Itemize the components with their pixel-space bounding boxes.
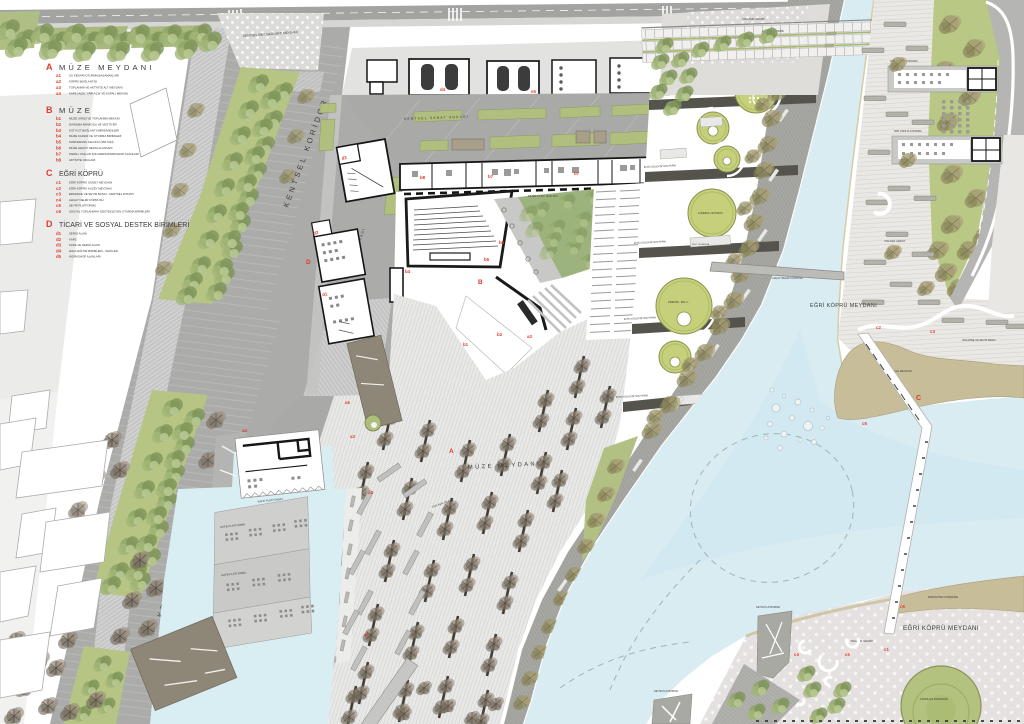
svg-text:HALK EĞİTİM BİRİMLERİ - İŞLİKL: HALK EĞİTİM BİRİMLERİ - İŞLİKLER bbox=[69, 248, 118, 253]
svg-text:d3: d3 bbox=[56, 243, 62, 248]
svg-text:c1: c1 bbox=[884, 647, 889, 652]
svg-text:d4: d4 bbox=[56, 248, 62, 253]
svg-text:KAFE (AÇIK, YARI AÇIK VE KAPAL: KAFE (AÇIK, YARI AÇIK VE KAPALI MEKAN) bbox=[69, 92, 128, 96]
svg-text:SOSYAL TOPLANMAYI DESTEKLEYEN: SOSYAL TOPLANMAYI DESTEKLEYEN OTURMA BİR… bbox=[69, 209, 150, 214]
svg-text:d5: d5 bbox=[56, 254, 62, 259]
svg-text:b7: b7 bbox=[56, 151, 62, 156]
svg-text:ÇİMENTE - 800 m²: ÇİMENTE - 800 m² bbox=[668, 301, 689, 304]
svg-text:b5: b5 bbox=[484, 257, 490, 262]
svg-text:b5: b5 bbox=[56, 140, 62, 145]
svg-text:WORKSHOP ALANLARI: WORKSHOP ALANLARI bbox=[69, 255, 101, 259]
svg-text:b7: b7 bbox=[574, 171, 580, 176]
svg-text:a2: a2 bbox=[56, 79, 61, 84]
svg-text:b8: b8 bbox=[56, 157, 62, 162]
svg-text:b2: b2 bbox=[56, 122, 62, 127]
svg-text:MÜZE: MÜZE bbox=[59, 106, 93, 115]
svg-text:b2: b2 bbox=[497, 332, 503, 337]
svg-text:KAFE: KAFE bbox=[69, 237, 77, 241]
svg-text:YAKLAŞIK GRANİT: YAKLAŞIK GRANİT bbox=[884, 240, 906, 243]
svg-text:c6: c6 bbox=[900, 604, 905, 609]
svg-text:a3: a3 bbox=[527, 334, 532, 339]
svg-text:c4: c4 bbox=[56, 197, 61, 202]
svg-text:SERGİ ALANI: SERGİ ALANI bbox=[69, 231, 87, 236]
svg-text:d4: d4 bbox=[440, 87, 446, 92]
svg-text:KÜLT VE MEDYA: KÜLT VE MEDYA bbox=[692, 243, 710, 246]
svg-text:a5: a5 bbox=[345, 400, 350, 405]
svg-text:c5: c5 bbox=[862, 421, 867, 426]
svg-text:b6: b6 bbox=[499, 240, 505, 245]
svg-text:b6: b6 bbox=[56, 146, 62, 151]
svg-text:c1: c1 bbox=[56, 180, 61, 185]
svg-text:b7: b7 bbox=[488, 174, 494, 179]
svg-text:ERKENCE VE SEYİR BANKI - KENTS: ERKENCE VE SEYİR BANKI - KENTSEL DONATI bbox=[69, 191, 134, 196]
svg-text:MÜZE GEÇİCİ SERGİ ALANLARI: MÜZE GEÇİCİ SERGİ ALANLARI bbox=[69, 145, 113, 150]
svg-text:b1: b1 bbox=[463, 342, 469, 347]
svg-text:KONFERANS SALONU (450 KİŞİ): KONFERANS SALONU (450 KİŞİ) bbox=[69, 139, 114, 144]
svg-text:a4: a4 bbox=[242, 428, 247, 433]
svg-text:MÜZE MEYDANI: MÜZE MEYDANI bbox=[59, 63, 154, 72]
svg-text:c6: c6 bbox=[56, 209, 61, 214]
svg-text:c5: c5 bbox=[56, 203, 61, 208]
svg-text:c3: c3 bbox=[56, 192, 61, 197]
svg-text:KAFE VE SERGİ ALANI: KAFE VE SERGİ ALANI bbox=[69, 242, 100, 247]
svg-text:a3: a3 bbox=[56, 85, 61, 90]
svg-text:a2: a2 bbox=[368, 490, 373, 495]
svg-text:EĞRİ KÖPRÜ KUZEY MEYDANI: EĞRİ KÖPRÜ KUZEY MEYDANI bbox=[69, 185, 112, 190]
svg-text:a1: a1 bbox=[364, 632, 369, 637]
svg-text:EĞRİ KÖPRÜ MEYDANI: EĞRİ KÖPRÜ MEYDANI bbox=[810, 302, 877, 309]
svg-text:C: C bbox=[46, 168, 53, 178]
svg-text:AKTİVİTE ODALARI: AKTİVİTE ODALARI bbox=[69, 157, 96, 162]
svg-text:TOPLANMA VE AKTİVİTE ALT MEYDA: TOPLANMA VE AKTİVİTE ALT MEYDANI bbox=[69, 85, 123, 90]
svg-text:FARKLI YAŞLAR İÇİN DERS/WORKSH: FARKLI YAŞLAR İÇİN DERS/WORKSHOP ALANLAR… bbox=[69, 151, 139, 156]
svg-text:b4: b4 bbox=[405, 269, 411, 274]
svg-text:c3: c3 bbox=[930, 329, 935, 334]
svg-text:D: D bbox=[306, 259, 311, 266]
svg-text:A: A bbox=[46, 62, 53, 72]
svg-text:KÖPRÜ BAĞLANTISI: KÖPRÜ BAĞLANTISI bbox=[69, 79, 97, 84]
svg-text:EĞRİ KÖPRÜ MEYDANI: EĞRİ KÖPRÜ MEYDANI bbox=[903, 625, 979, 632]
svg-text:a1: a1 bbox=[56, 73, 61, 78]
svg-text:D: D bbox=[46, 219, 53, 229]
svg-text:DANIŞMA BANKOSU VE VESTİYER: DANIŞMA BANKOSU VE VESTİYER bbox=[69, 121, 117, 126]
svg-text:AHÇAY NEHİR KÖPRÜSÜ: AHÇAY NEHİR KÖPRÜSÜ bbox=[69, 197, 104, 202]
svg-text:GÜNEBOLU ETKİNLİK: GÜNEBOLU ETKİNLİK bbox=[698, 212, 723, 215]
svg-text:d1: d1 bbox=[56, 231, 62, 236]
svg-text:SEYİR PLATFORMU: SEYİR PLATFORMU bbox=[69, 203, 96, 208]
svg-text:b4: b4 bbox=[56, 134, 62, 139]
svg-text:a3: a3 bbox=[350, 434, 355, 439]
svg-text:TİCARİ VE SOSYAL DESTEK BİRİML: TİCARİ VE SOSYAL DESTEK BİRİMLERİ bbox=[59, 220, 189, 229]
svg-text:c6: c6 bbox=[845, 652, 850, 657]
svg-text:C: C bbox=[916, 395, 921, 402]
svg-text:MÜZE KÜLT. AVLUSU: MÜZE KÜLT. AVLUSU bbox=[528, 194, 558, 198]
svg-text:EĞRİ KÖPRÜ: EĞRİ KÖPRÜ bbox=[59, 169, 103, 178]
svg-text:EĞRİ KÖPRÜ GÜNEY MEYDANI: EĞRİ KÖPRÜ GÜNEY MEYDANI bbox=[69, 180, 112, 185]
svg-text:B: B bbox=[478, 279, 483, 286]
svg-text:c2: c2 bbox=[56, 186, 61, 191]
svg-text:MÜZE KAFESİ VE OTURMA BİRİMLER: MÜZE KAFESİ VE OTURMA BİRİMLERİ bbox=[69, 133, 122, 138]
svg-text:b8: b8 bbox=[420, 175, 426, 180]
svg-text:B: B bbox=[46, 105, 53, 115]
svg-text:c2: c2 bbox=[876, 325, 881, 330]
svg-text:e5: e5 bbox=[531, 89, 536, 94]
svg-text:SU KENARI OTURMA BASAMAKLARI: SU KENARI OTURMA BASAMAKLARI bbox=[69, 74, 119, 78]
svg-text:d2: d2 bbox=[56, 237, 62, 242]
svg-text:c5: c5 bbox=[794, 652, 799, 657]
svg-text:b1: b1 bbox=[56, 116, 62, 121]
svg-text:PARKANTES COMMUNE: PARKANTES COMMUNE bbox=[928, 595, 958, 599]
svg-text:AMF. KAFE PLATFORMU: AMF. KAFE PLATFORMU bbox=[894, 130, 922, 133]
svg-text:b3: b3 bbox=[56, 128, 62, 133]
svg-text:MÜZE GİRİŞİ VE TOPLANMA MEKANI: MÜZE GİRİŞİ VE TOPLANMA MEKANI bbox=[69, 116, 120, 121]
svg-text:a4: a4 bbox=[56, 91, 61, 96]
svg-text:A: A bbox=[449, 448, 454, 455]
svg-text:ÜST KOT BAĞLANTI MERDİVENLERİ: ÜST KOT BAĞLANTI MERDİVENLERİ bbox=[69, 127, 119, 132]
